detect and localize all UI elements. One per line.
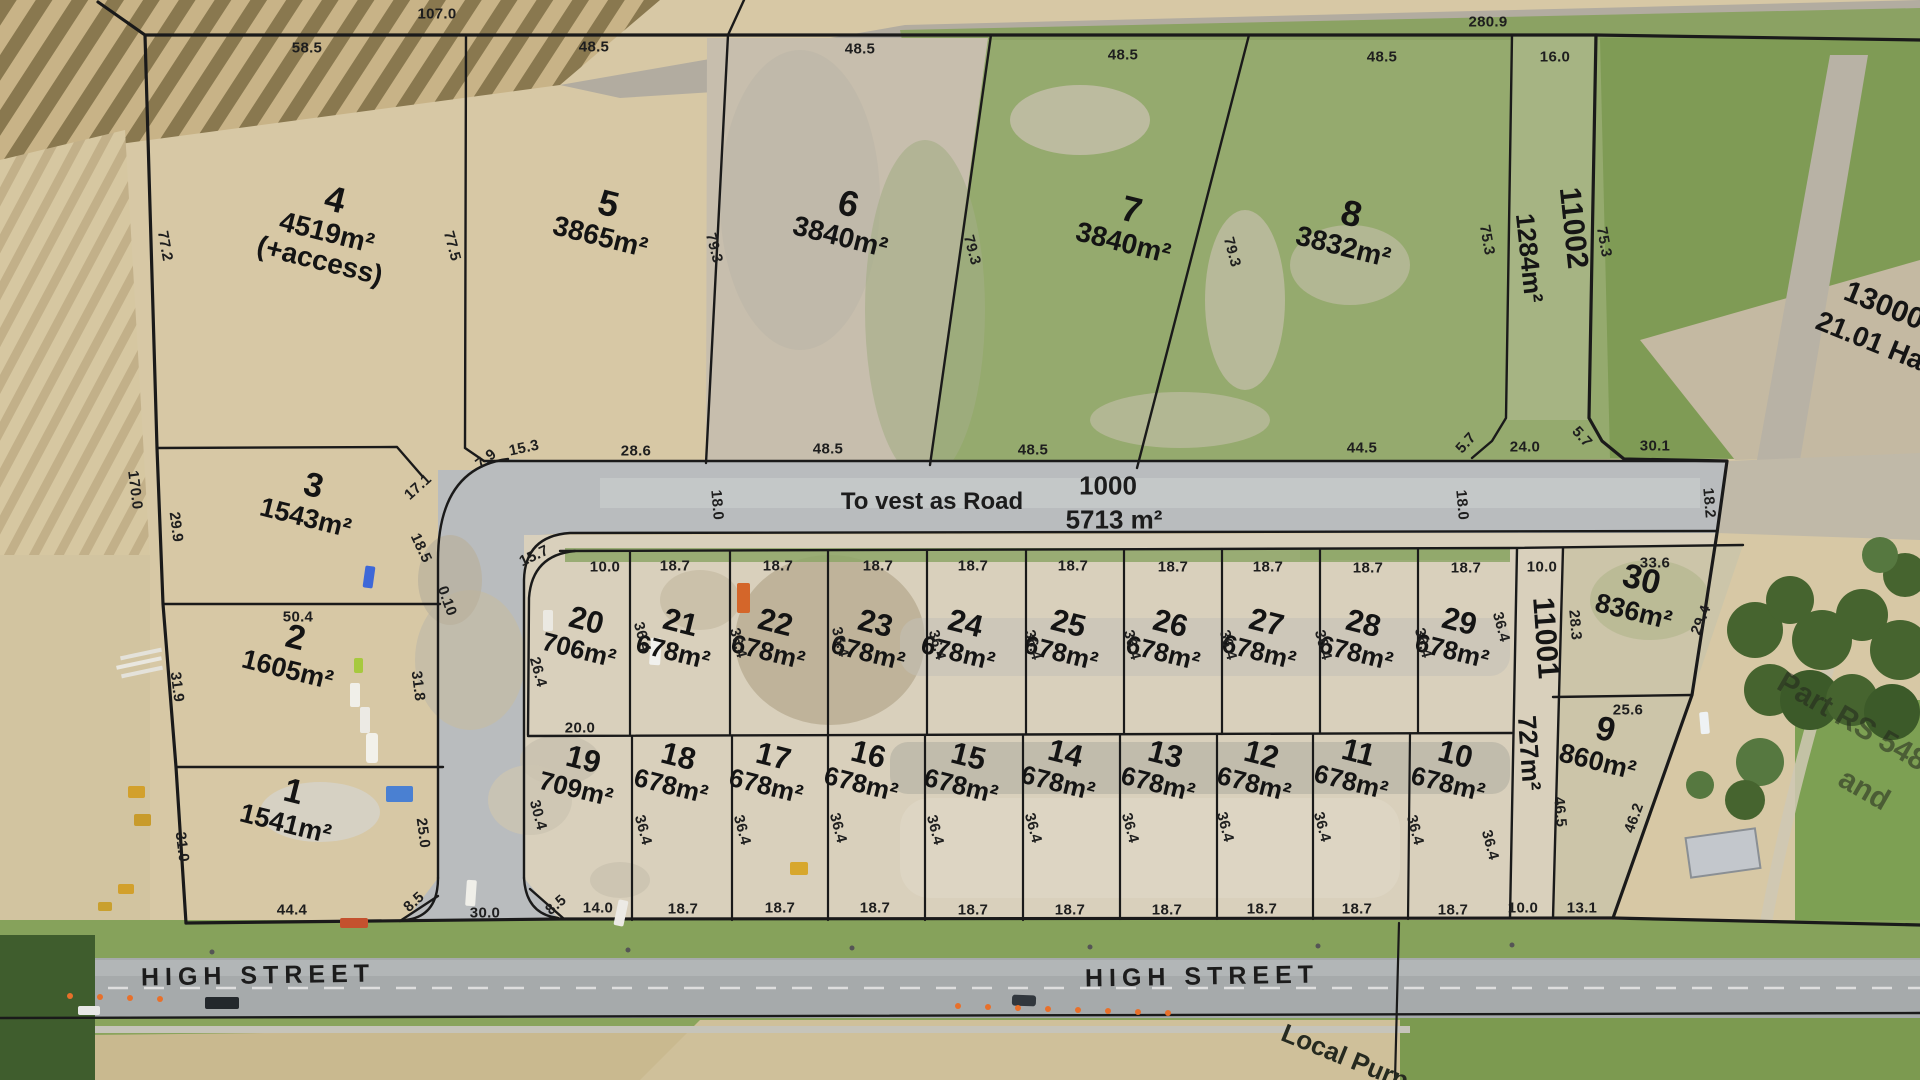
dim-label: 36.4: [1478, 828, 1502, 862]
dim-label: 280.9: [1468, 14, 1507, 31]
dim-label: 31.0: [172, 831, 193, 863]
lot-label-6: 63840m²: [790, 174, 900, 263]
dim-label: 77.5: [440, 229, 464, 263]
dim-label: 46.5: [1550, 796, 1570, 828]
dim-label: 8.5: [400, 888, 428, 915]
dim-label: 79.3: [702, 231, 726, 265]
lot-label-11: 11678m²: [1311, 728, 1398, 804]
dim-label: 30.0: [470, 905, 500, 922]
lot-label-10: 10678m²: [1408, 730, 1495, 806]
dim-label: 18.7: [1451, 560, 1481, 577]
dim-label: 44.5: [1347, 440, 1377, 457]
lot-label-3: 31543m²: [257, 458, 363, 543]
dim-label: 18.0: [1452, 489, 1472, 521]
dim-label: 79.3: [1220, 235, 1244, 269]
dim-label: 18.5: [407, 531, 435, 566]
dim-label: 28.6: [621, 443, 651, 460]
dim-label: 18.7: [1158, 559, 1188, 576]
dim-label: 77.2: [154, 230, 176, 263]
lot-label-4: 44519m²(+access): [254, 166, 402, 291]
dim-label: 75.3: [1593, 226, 1615, 259]
dim-label: 15.7: [517, 542, 552, 570]
parcel-label-11001: 11001: [1525, 596, 1565, 680]
dim-label: 36.4: [1403, 813, 1427, 847]
lot-label-15: 15678m²: [921, 732, 1008, 808]
part-rs-label: Part RS 548: [1771, 666, 1920, 779]
dim-label: 18.7: [763, 558, 793, 575]
lot-label-1: 11541m²: [237, 764, 343, 849]
dim-label: 18.7: [1058, 558, 1088, 575]
local-purpose-label: Local Purp: [1277, 1017, 1413, 1080]
lot-label-14: 14678m²: [1018, 729, 1105, 805]
dim-label: 31.9: [167, 671, 188, 703]
lot-label-13: 13678m²: [1118, 730, 1205, 806]
dim-label: 20.0: [565, 720, 595, 737]
lot-label-8: 83832m²: [1293, 184, 1403, 273]
dim-label: 75.3: [1476, 224, 1498, 257]
dim-label: 36.4: [730, 813, 754, 847]
dim-label: 18.7: [1342, 901, 1372, 918]
dim-label: 7.9: [472, 446, 500, 473]
lot-label-18: 18678m²: [631, 732, 718, 808]
dim-label: 18.7: [1353, 560, 1383, 577]
lot-label-19: 19709m²: [536, 735, 623, 811]
dim-label: 36.4: [631, 813, 655, 847]
dim-label: 18.7: [1253, 559, 1283, 576]
dim-label: 33.6: [1640, 555, 1670, 572]
dim-label: 28.3: [1565, 609, 1585, 641]
dim-label: 18.7: [1247, 901, 1277, 918]
dim-label: 16.0: [1540, 49, 1570, 66]
lot-label-16: 16678m²: [821, 730, 908, 806]
dim-label: 18.0: [707, 489, 727, 521]
dim-label: 5.7: [1452, 429, 1479, 457]
dim-label: 15.3: [507, 437, 540, 460]
dim-label: 18.7: [1152, 902, 1182, 919]
dim-label: 30.1: [1640, 438, 1670, 455]
dim-label: 24.0: [1510, 439, 1540, 456]
dim-label: 170.0: [124, 470, 146, 511]
dim-label: 18.7: [765, 900, 795, 917]
dim-label: 107.0: [417, 6, 456, 23]
dim-label: 18.7: [863, 558, 893, 575]
dim-label: 0.10: [434, 584, 460, 618]
dim-label: 29.9: [166, 511, 187, 543]
dim-label: 18.2: [1699, 487, 1719, 519]
dim-label: 50.4: [283, 609, 313, 626]
lot-label-5: 53865m²: [550, 174, 660, 263]
road-lot-number: 1000: [1079, 471, 1137, 502]
lot-label-12: 12678m²: [1214, 730, 1301, 806]
dim-label: 36.4: [1021, 811, 1045, 845]
dim-label: 10.0: [1508, 900, 1538, 917]
parcel-label-727m: 727m²: [1511, 714, 1547, 791]
dim-label: 48.5: [1367, 49, 1397, 66]
dim-label: 14.0: [583, 900, 613, 917]
dim-label: 25.0: [413, 817, 434, 849]
to-vest-as-road-label: To vest as Road: [841, 488, 1023, 516]
dim-label: 48.5: [813, 441, 843, 458]
dim-label: 36.4: [1213, 810, 1237, 844]
dim-label: 17.1: [401, 471, 435, 504]
dim-label: 18.7: [1438, 902, 1468, 919]
dim-label: 18.7: [668, 901, 698, 918]
dim-label: 18.7: [1055, 902, 1085, 919]
dim-label: 26.4: [526, 655, 550, 689]
dim-label: 46.2: [1621, 801, 1647, 835]
subdivision-aerial-map: To vest as Road 1000 5713 m² HIGH STREET…: [0, 0, 1920, 1080]
dim-label: 48.5: [1018, 442, 1048, 459]
dim-label: 36.4: [826, 811, 850, 845]
high-street-label-right: HIGH STREET: [1085, 960, 1320, 993]
dim-label: 48.5: [845, 41, 875, 58]
dim-label: 44.4: [277, 902, 307, 919]
lot-label-7: 73840m²: [1073, 180, 1183, 269]
parcel-label-1284m: 1284m²: [1509, 212, 1549, 304]
dim-label: 48.5: [579, 39, 609, 56]
map-annotations: To vest as Road 1000 5713 m² HIGH STREET…: [0, 0, 1920, 1080]
dim-label: 36.4: [923, 813, 947, 847]
high-street-label-left: HIGH STREET: [141, 959, 376, 992]
dim-label: 10.0: [590, 559, 620, 576]
dim-label: 5.7: [1568, 423, 1595, 451]
dim-label: 25.6: [1613, 702, 1643, 719]
dim-label: 13.1: [1567, 900, 1597, 917]
dim-label: 36.4: [1310, 810, 1334, 844]
dim-label: 36.4: [1118, 811, 1142, 845]
lot-label-17: 17678m²: [726, 732, 813, 808]
dim-label: 18.7: [958, 558, 988, 575]
dim-label: 18.7: [860, 900, 890, 917]
dim-label: 31.8: [408, 670, 429, 702]
dim-label: 29.4: [1687, 603, 1714, 638]
part-rs-label-2: and: [1832, 762, 1895, 818]
dim-label: 8.5: [542, 891, 570, 918]
lot-label-20: 20706m²: [539, 596, 626, 672]
dim-label: 58.5: [292, 40, 322, 57]
parcel-label-11002: 11002: [1552, 186, 1594, 271]
dim-label: 10.0: [1527, 559, 1557, 576]
dim-label: 18.7: [660, 558, 690, 575]
road-lot-area: 5713 m²: [1066, 505, 1163, 536]
dim-label: 48.5: [1108, 47, 1138, 64]
dim-label: 18.7: [958, 902, 988, 919]
dim-label: 79.3: [960, 233, 984, 267]
dim-label: 30.4: [526, 798, 550, 832]
